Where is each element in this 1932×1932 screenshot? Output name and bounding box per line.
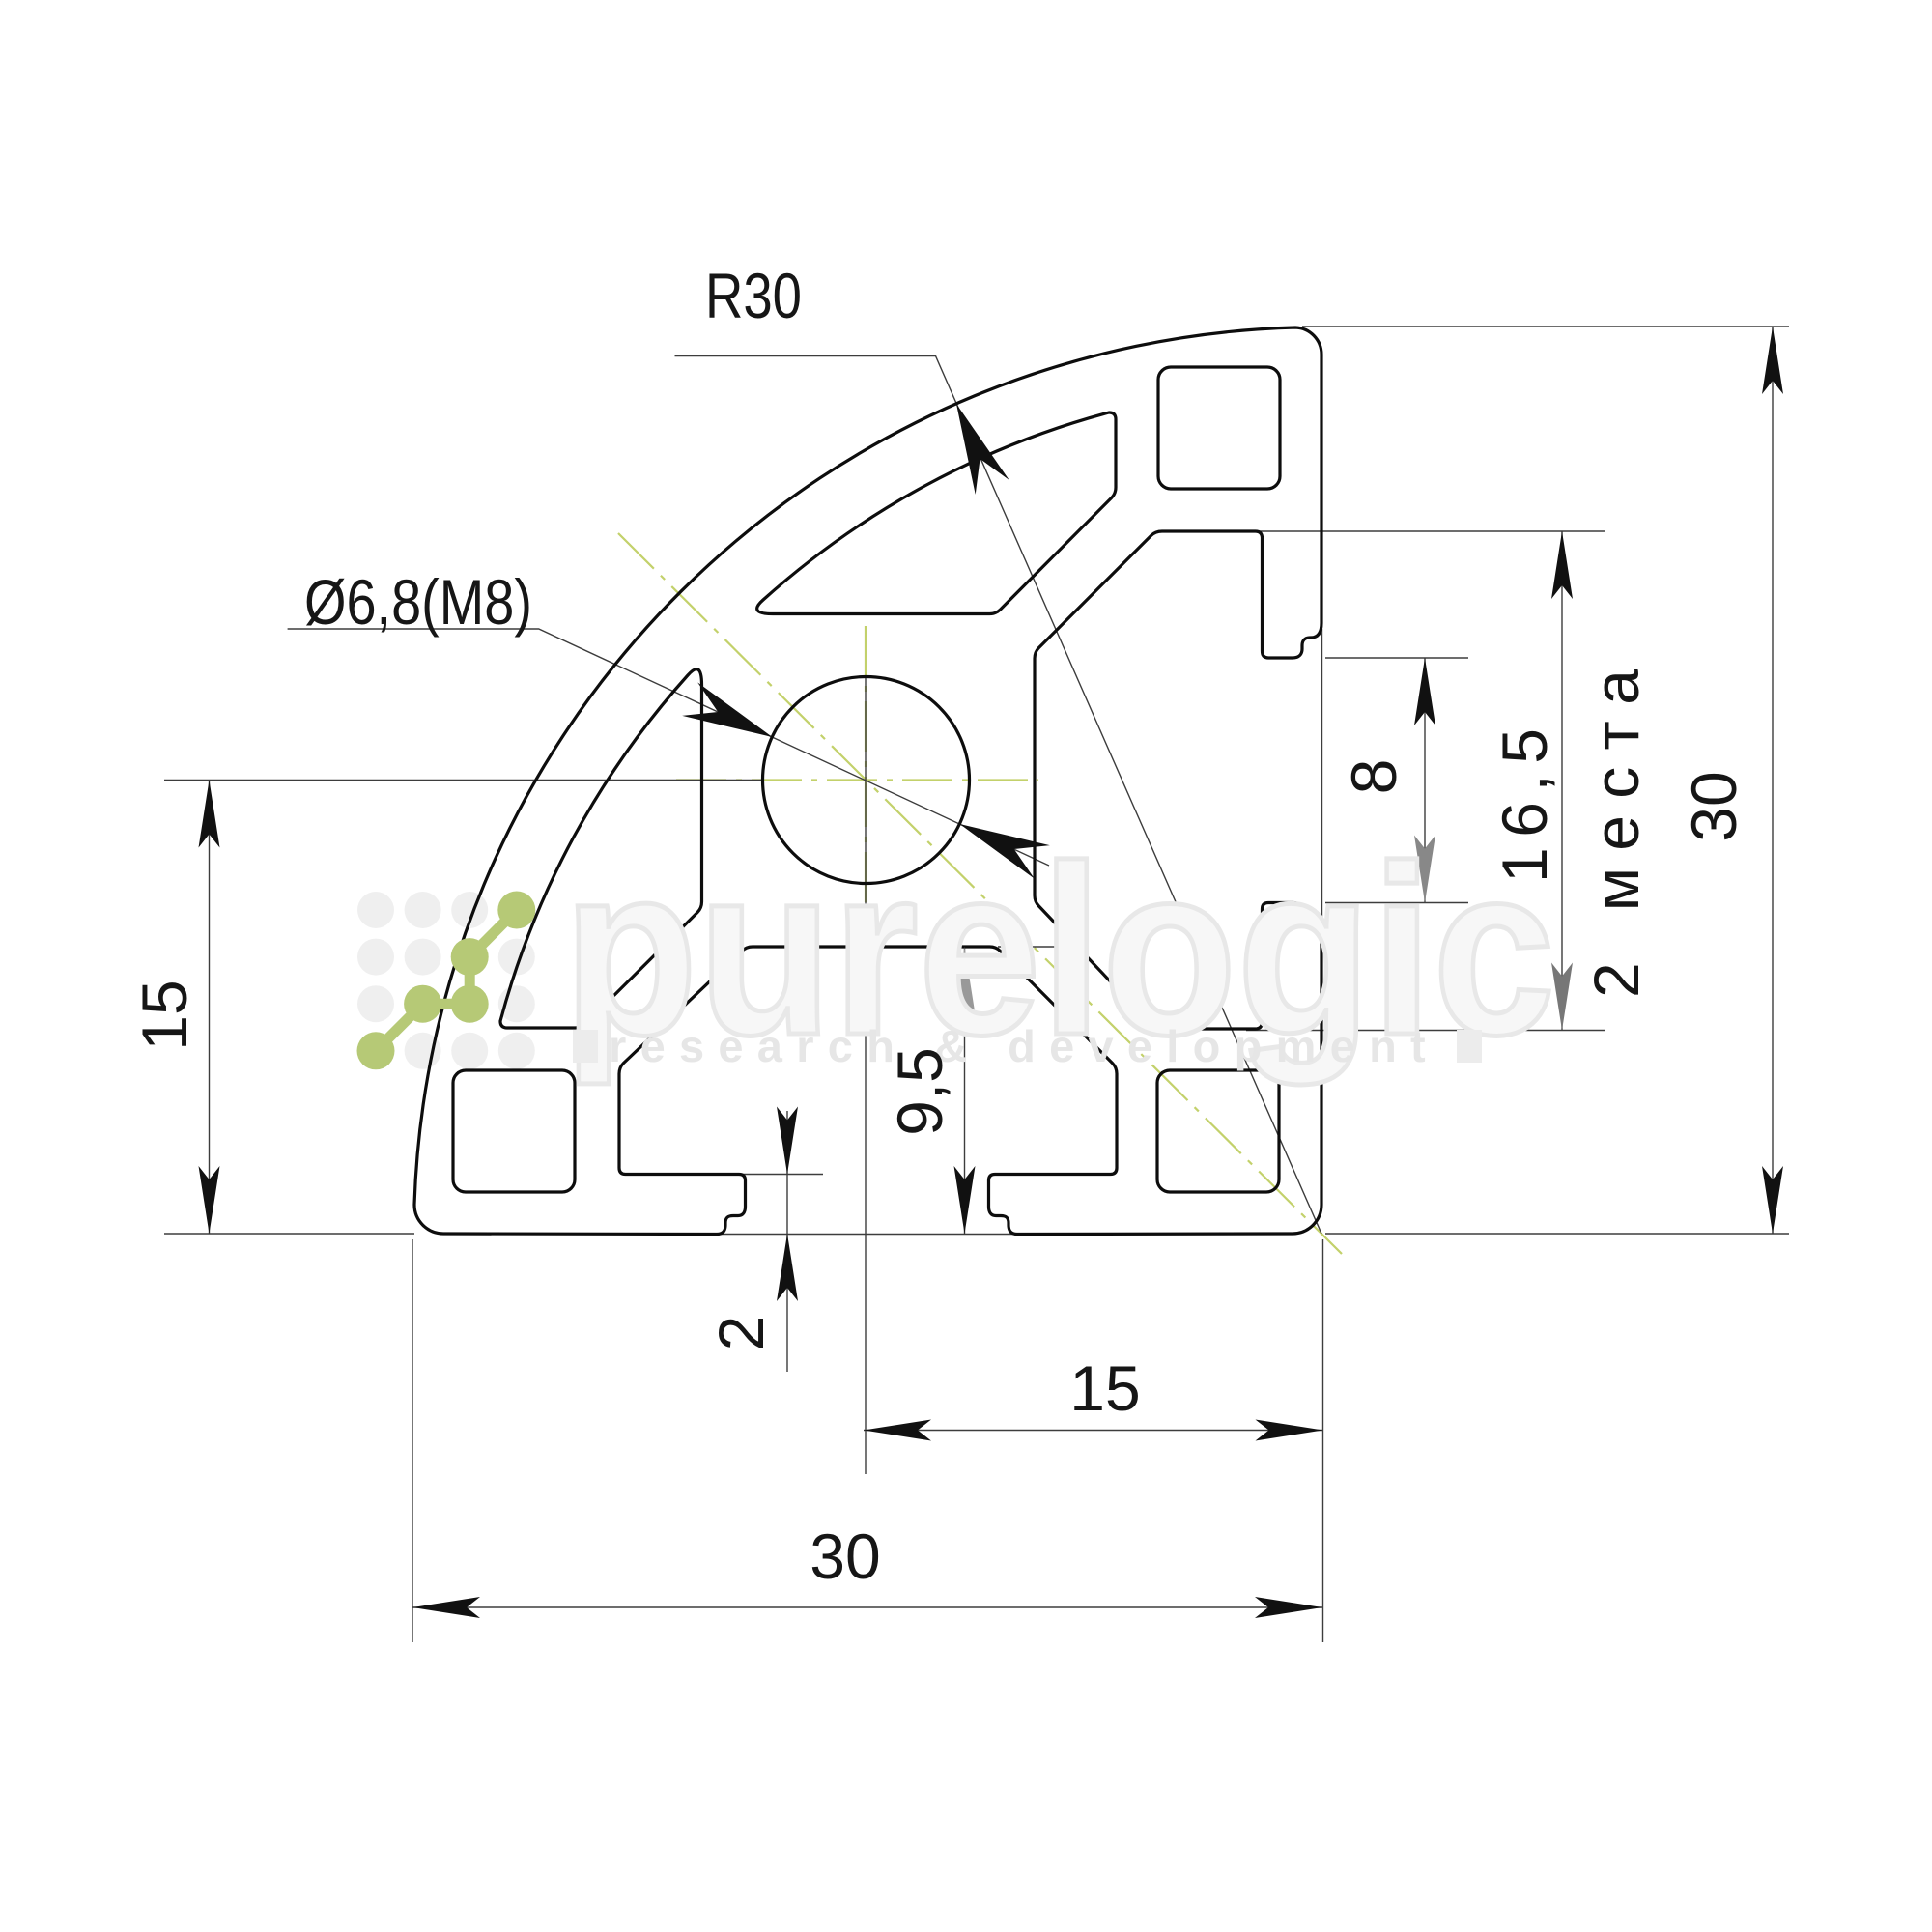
svg-text:30: 30 xyxy=(1678,771,1749,841)
svg-text:Ø6,8(M8): Ø6,8(M8) xyxy=(304,566,532,638)
svg-text:15: 15 xyxy=(128,980,200,1050)
svg-text:9,5: 9,5 xyxy=(884,1047,955,1136)
svg-text:research & development: research & development xyxy=(609,1021,1439,1071)
svg-text:16,5: 16,5 xyxy=(1489,728,1560,883)
svg-text:15: 15 xyxy=(1069,1352,1140,1424)
svg-text:R30: R30 xyxy=(705,260,802,331)
svg-text:30: 30 xyxy=(810,1520,880,1592)
svg-text:8: 8 xyxy=(1338,759,1409,795)
svg-text:2: 2 xyxy=(705,1316,777,1351)
